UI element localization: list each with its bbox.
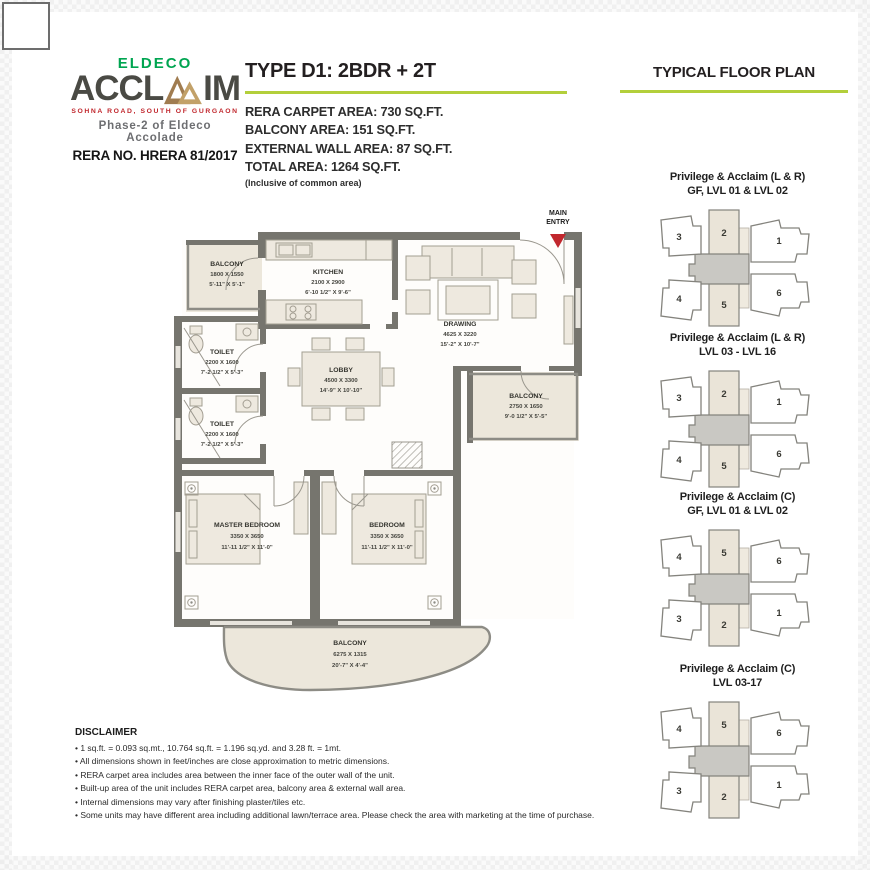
key-plan-title: Privilege & Acclaim (C) [645, 490, 830, 504]
key-plan-svg: 3 2 1 4 5 6 [653, 365, 823, 493]
area-external-wall: EXTERNAL WALL AREA: 87 SQ.FT. [245, 140, 575, 159]
unit-number: 3 [676, 614, 681, 625]
disclaimer-item: Some units may have different area inclu… [75, 809, 595, 822]
dim-ft: 5'-11" X 5'-1" [209, 282, 245, 288]
dim-ft: 11'-11 1/2" X 11'-0" [221, 545, 273, 551]
dim-mm: 2750 X 1650 [509, 404, 543, 410]
area-balcony: BALCONY AREA: 151 SQ.FT. [245, 121, 575, 140]
label-bedroom: BEDROOM [369, 522, 405, 529]
unit-number: 2 [721, 792, 726, 803]
disclaimer-item: Internal dimensions may vary after finis… [75, 796, 595, 809]
unit-number: 2 [721, 228, 726, 239]
key-plan-subtitle: LVL 03 - LVL 16 [645, 345, 830, 359]
unit-number: 4 [676, 294, 682, 305]
label-master-bedroom: MASTER BEDROOM [214, 522, 280, 529]
key-plan-3: Privilege & Acclaim (C) GF, LVL 01 & LVL… [645, 490, 830, 657]
floor-plan-svg: MAIN ENTRY BALCONY 1800 X 1550 5'-11" X … [160, 196, 605, 696]
unit-number: 3 [676, 786, 681, 797]
unit-number: 6 [776, 449, 781, 460]
divider-line [620, 90, 848, 93]
main-entry-label-2: ENTRY [546, 219, 570, 226]
area-summary: RERA CARPET AREA: 730 SQ.FT. BALCONY ARE… [245, 103, 575, 188]
label-balcony-tl: BALCONY [210, 261, 244, 268]
unit-number: 4 [676, 724, 682, 735]
label-lobby: LOBBY [329, 367, 353, 374]
dim-ft: 15'-2" X 10'-7" [440, 342, 479, 348]
plan-title-block: TYPICAL FLOOR PLAN [620, 64, 848, 93]
unit-number: 4 [676, 552, 682, 563]
scan-edge-bottom [0, 856, 870, 870]
dim-ft: 6'-10 1/2" X 9'-6" [305, 290, 351, 296]
key-plan-svg: 4 5 6 3 2 1 [653, 696, 823, 824]
dim-ft: 7'-2 1/2" X 5'-3" [201, 370, 244, 376]
scan-edge-left [0, 0, 12, 870]
disclaimer-title: DISCLAIMER [75, 727, 595, 738]
brand-phase: Phase-2 of Eldeco Accolade [70, 120, 240, 144]
unit-number: 5 [721, 300, 727, 311]
key-plan-svg: 4 5 6 3 2 1 [653, 524, 823, 652]
key-plan-2: Privilege & Acclaim (L & R) LVL 03 - LVL… [645, 331, 830, 498]
dim-mm: 2200 X 1600 [205, 432, 239, 438]
dim-ft: 14'-9" X 10'-10" [320, 388, 363, 394]
unit-number: 2 [721, 620, 726, 631]
area-note: (Inclusive of common area) [245, 178, 575, 188]
dim-ft: 11'-11 1/2" X 11'-0" [361, 545, 413, 551]
disclaimer-item: All dimensions shown in feet/inches are … [75, 755, 595, 768]
scan-edge-top [0, 0, 870, 12]
unit-type-block: TYPE D1: 2BDR + 2T RERA CARPET AREA: 730… [245, 60, 575, 188]
dim-ft: 7'-2 1/2" X 5'-3" [201, 442, 244, 448]
key-plan-title: Privilege & Acclaim (L & R) [645, 331, 830, 345]
unit-number: 1 [776, 397, 782, 408]
plan-title: TYPICAL FLOOR PLAN [620, 64, 848, 81]
unit-number: 6 [776, 556, 781, 567]
unit-number: 1 [776, 608, 782, 619]
dim-mm: 3350 X 3650 [230, 534, 264, 540]
key-plan-subtitle: LVL 03-17 [645, 676, 830, 690]
dim-mm: 4625 X 3220 [443, 332, 477, 338]
unit-number: 5 [721, 720, 727, 731]
area-carpet: RERA CARPET AREA: 730 SQ.FT. [245, 103, 575, 122]
disclaimer-item: Built-up area of the unit includes RERA … [75, 782, 595, 795]
unit-number: 3 [676, 232, 681, 243]
unit-number: 5 [721, 548, 727, 559]
scan-corner-artifact [2, 2, 50, 50]
unit-number: 6 [776, 288, 781, 299]
key-plan-subtitle: GF, LVL 01 & LVL 02 [645, 504, 830, 518]
mountain-peaks-icon [164, 73, 202, 105]
scan-edge-right [858, 0, 870, 870]
label-drawing: DRAWING [444, 321, 477, 328]
unit-number: 4 [676, 455, 682, 466]
brand-acclaim-left: ACCL [70, 73, 163, 105]
floor-plan-drawing: MAIN ENTRY BALCONY 1800 X 1550 5'-11" X … [160, 196, 605, 696]
key-plan-title: Privilege & Acclaim (C) [645, 662, 830, 676]
label-balcony-bottom: BALCONY [333, 640, 367, 647]
unit-number: 6 [776, 728, 781, 739]
key-plan-4: Privilege & Acclaim (C) LVL 03-17 4 5 6 … [645, 662, 830, 829]
dim-mm: 2100 X 2900 [311, 280, 345, 286]
floor-plan-page: ELDECO ACCL IM SOHNA ROAD, SOUTH OF GURG… [0, 0, 870, 870]
dim-ft: 20'-7" X 4'-4" [332, 663, 368, 669]
key-plan-title: Privilege & Acclaim (L & R) [645, 170, 830, 184]
dim-mm: 4500 X 3300 [324, 378, 358, 384]
key-plan-svg: 3 2 1 4 5 6 [653, 204, 823, 332]
brand-acclaim-right: IM [203, 73, 240, 105]
label-balcony-right: BALCONY [509, 393, 543, 400]
dim-mm: 1800 X 1550 [210, 272, 244, 278]
area-total: TOTAL AREA: 1264 SQ.FT. [245, 158, 575, 177]
label-kitchen: KITCHEN [313, 269, 343, 276]
brand-tagline: SOHNA ROAD, SOUTH OF GURGAON [70, 108, 240, 115]
unit-number: 1 [776, 236, 782, 247]
service-shaft [392, 442, 422, 468]
disclaimer: DISCLAIMER 1 sq.ft. = 0.093 sq.mt., 10.7… [75, 727, 595, 822]
dim-mm: 3350 X 3650 [370, 534, 404, 540]
unit-type-title: TYPE D1: 2BDR + 2T [245, 60, 575, 83]
disclaimer-item: 1 sq.ft. = 0.093 sq.mt., 10.764 sq.ft. =… [75, 742, 595, 755]
brand-logo: ELDECO ACCL IM SOHNA ROAD, SOUTH OF GURG… [70, 55, 240, 163]
unit-number: 3 [676, 393, 681, 404]
key-plan-subtitle: GF, LVL 01 & LVL 02 [645, 184, 830, 198]
unit-number: 1 [776, 780, 782, 791]
label-toilet-2: TOILET [210, 421, 235, 428]
dim-mm: 6275 X 1315 [333, 652, 367, 658]
brand-acclaim: ACCL IM [70, 73, 240, 105]
divider-line [245, 91, 567, 94]
label-toilet-1: TOILET [210, 349, 235, 356]
unit-number: 2 [721, 389, 726, 400]
rera-number: RERA NO. HRERA 81/2017 [70, 148, 240, 163]
main-entry-label-1: MAIN [549, 210, 567, 217]
unit-number: 5 [721, 461, 727, 472]
dim-ft: 9'-0 1/2" X 5'-5" [505, 414, 548, 420]
disclaimer-item: RERA carpet area includes area between t… [75, 769, 595, 782]
dim-mm: 2200 X 1600 [205, 360, 239, 366]
key-plan-1: Privilege & Acclaim (L & R) GF, LVL 01 &… [645, 170, 830, 337]
